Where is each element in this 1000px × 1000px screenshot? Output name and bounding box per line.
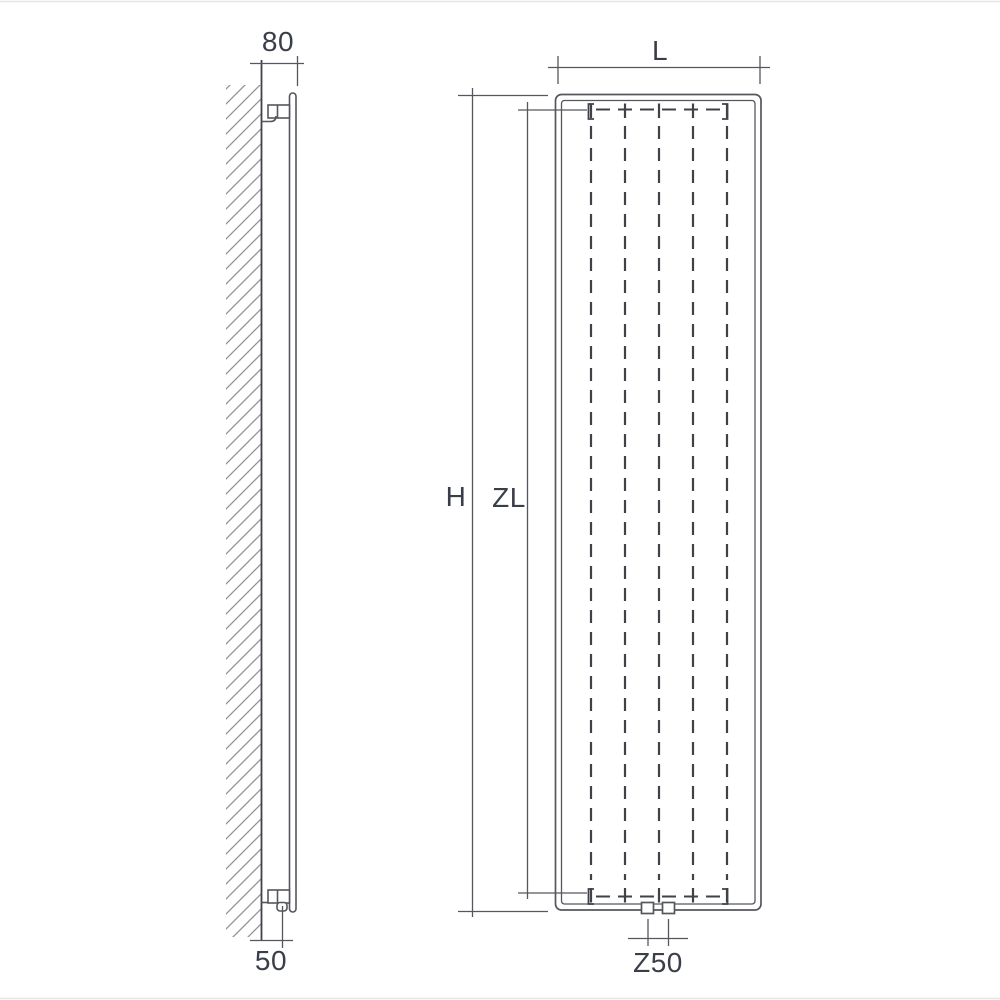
top-wall-bracket xyxy=(262,105,290,122)
dimension-label-Z50: Z50 xyxy=(633,947,683,978)
wall-hatch xyxy=(226,85,261,937)
dimension-label-50: 50 xyxy=(255,945,287,976)
pipe-connection-right xyxy=(663,903,675,914)
pipe-connection-left xyxy=(642,903,654,914)
dimension-depth-80: 80 xyxy=(250,26,304,86)
dimension-width-L: L xyxy=(548,35,770,84)
dimension-label-L: L xyxy=(652,35,668,66)
radiator-dimension-drawing: 80 50 xyxy=(0,0,1000,1000)
dimension-label-H: H xyxy=(446,481,467,512)
bracket-block xyxy=(268,890,290,903)
dimension-connection-Z50: Z50 xyxy=(628,919,688,978)
dimension-label-ZL: ZL xyxy=(492,482,526,513)
side-view: 80 50 xyxy=(226,26,304,976)
bottom-wall-bracket xyxy=(262,890,290,911)
radiator-panel-side-profile xyxy=(290,93,297,912)
dimension-label-80: 80 xyxy=(262,26,294,57)
bracket-block xyxy=(268,105,290,118)
front-view: L H ZL Z50 xyxy=(446,35,770,978)
drawing-canvas: 80 50 xyxy=(0,0,1000,1000)
